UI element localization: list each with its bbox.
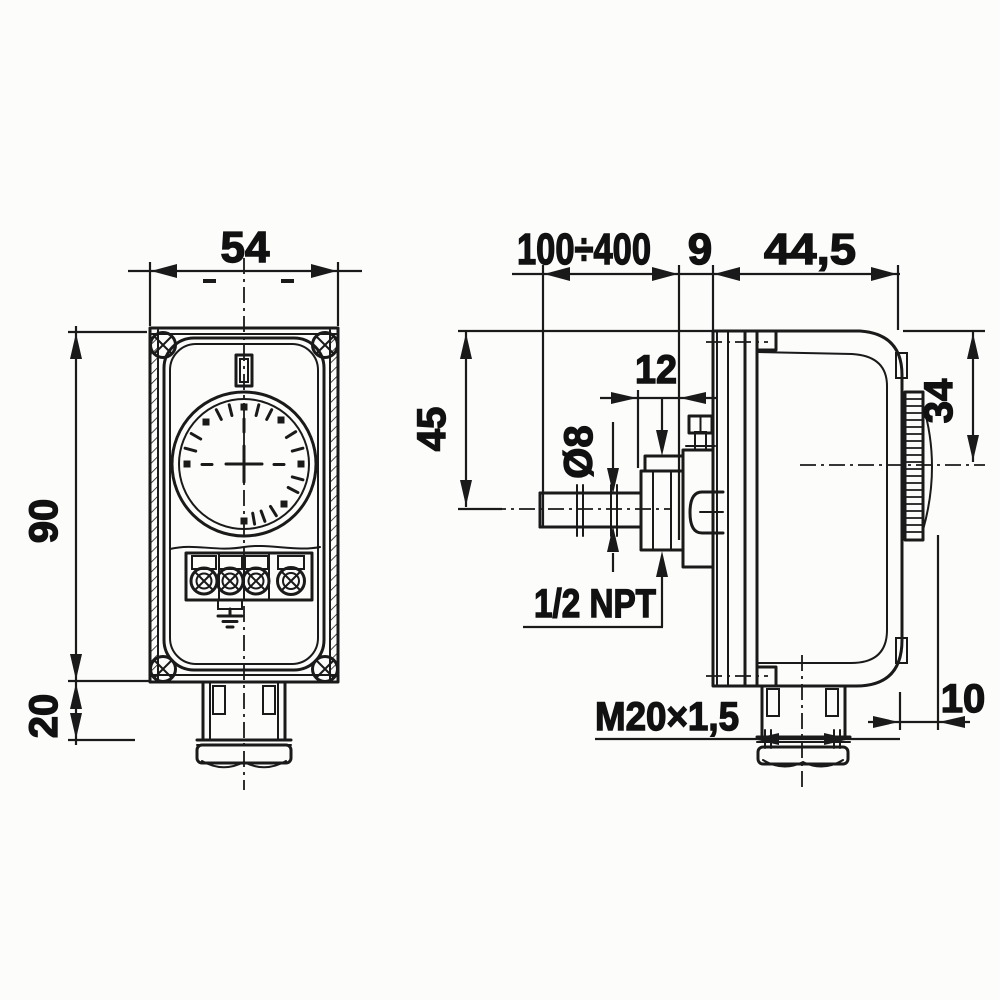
neck-block: [683, 450, 713, 567]
front-dimensions: 54 90 20: [22, 223, 362, 745]
dim-immersion-label: 100÷400: [517, 225, 651, 274]
cable-gland-thread-label: M20×1,5: [595, 695, 739, 739]
gland-slot: [767, 689, 779, 716]
probe: [540, 485, 641, 536]
dim-width-label: 54: [221, 223, 270, 272]
terminal-screw-icon: [191, 556, 217, 594]
bushing-cap: [645, 456, 683, 471]
dim-neck-label: 9: [688, 225, 712, 274]
mounting-mark: [281, 279, 294, 283]
gland-slot: [213, 686, 225, 714]
front-view: [150, 258, 338, 790]
ground-symbol-icon: [218, 609, 242, 627]
terminal-screw-icon: [278, 556, 305, 595]
dimension-drawing: 54 90 20: [0, 0, 1000, 1000]
gland-slot: [263, 686, 275, 714]
terminal-block: [186, 553, 312, 609]
drawing-page: 54 90 20: [0, 0, 1000, 1000]
dim-gland-height-label: 20: [22, 694, 66, 739]
dim-probe-axis-label: 45: [410, 407, 454, 452]
cover-outline: [745, 331, 902, 686]
front-seal-right: [330, 334, 338, 675]
side-dimensions: 100÷400 9 44,5 12 45 Ø8 1/2 NPT: [410, 225, 985, 745]
dim-probe-dia-label: Ø8: [557, 425, 601, 478]
gland-slot: [826, 689, 838, 716]
dim-bushing-label: 12: [635, 348, 677, 392]
dim-knob-axis-label: 34: [917, 378, 961, 423]
dim-depth-label: 44,5: [764, 225, 856, 274]
cover-latch-top: [757, 331, 776, 350]
faceplate-cutout-edge: [170, 546, 320, 549]
dim-height-label: 90: [22, 499, 66, 544]
terminal-screw-icon: [243, 556, 269, 594]
process-thread-label: 1/2 NPT: [534, 582, 656, 626]
mounting-mark: [203, 279, 216, 283]
cover-inner-line: [757, 352, 887, 663]
terminal-screw-icon: [217, 556, 243, 594]
dim-knob-protrusion-label: 10: [941, 677, 986, 721]
front-seal-left: [150, 334, 158, 675]
hex-bushing: [641, 471, 683, 550]
mounting-flange: [713, 331, 745, 686]
adjust-screw: [686, 416, 715, 450]
cable-gland-side: [757, 686, 850, 767]
